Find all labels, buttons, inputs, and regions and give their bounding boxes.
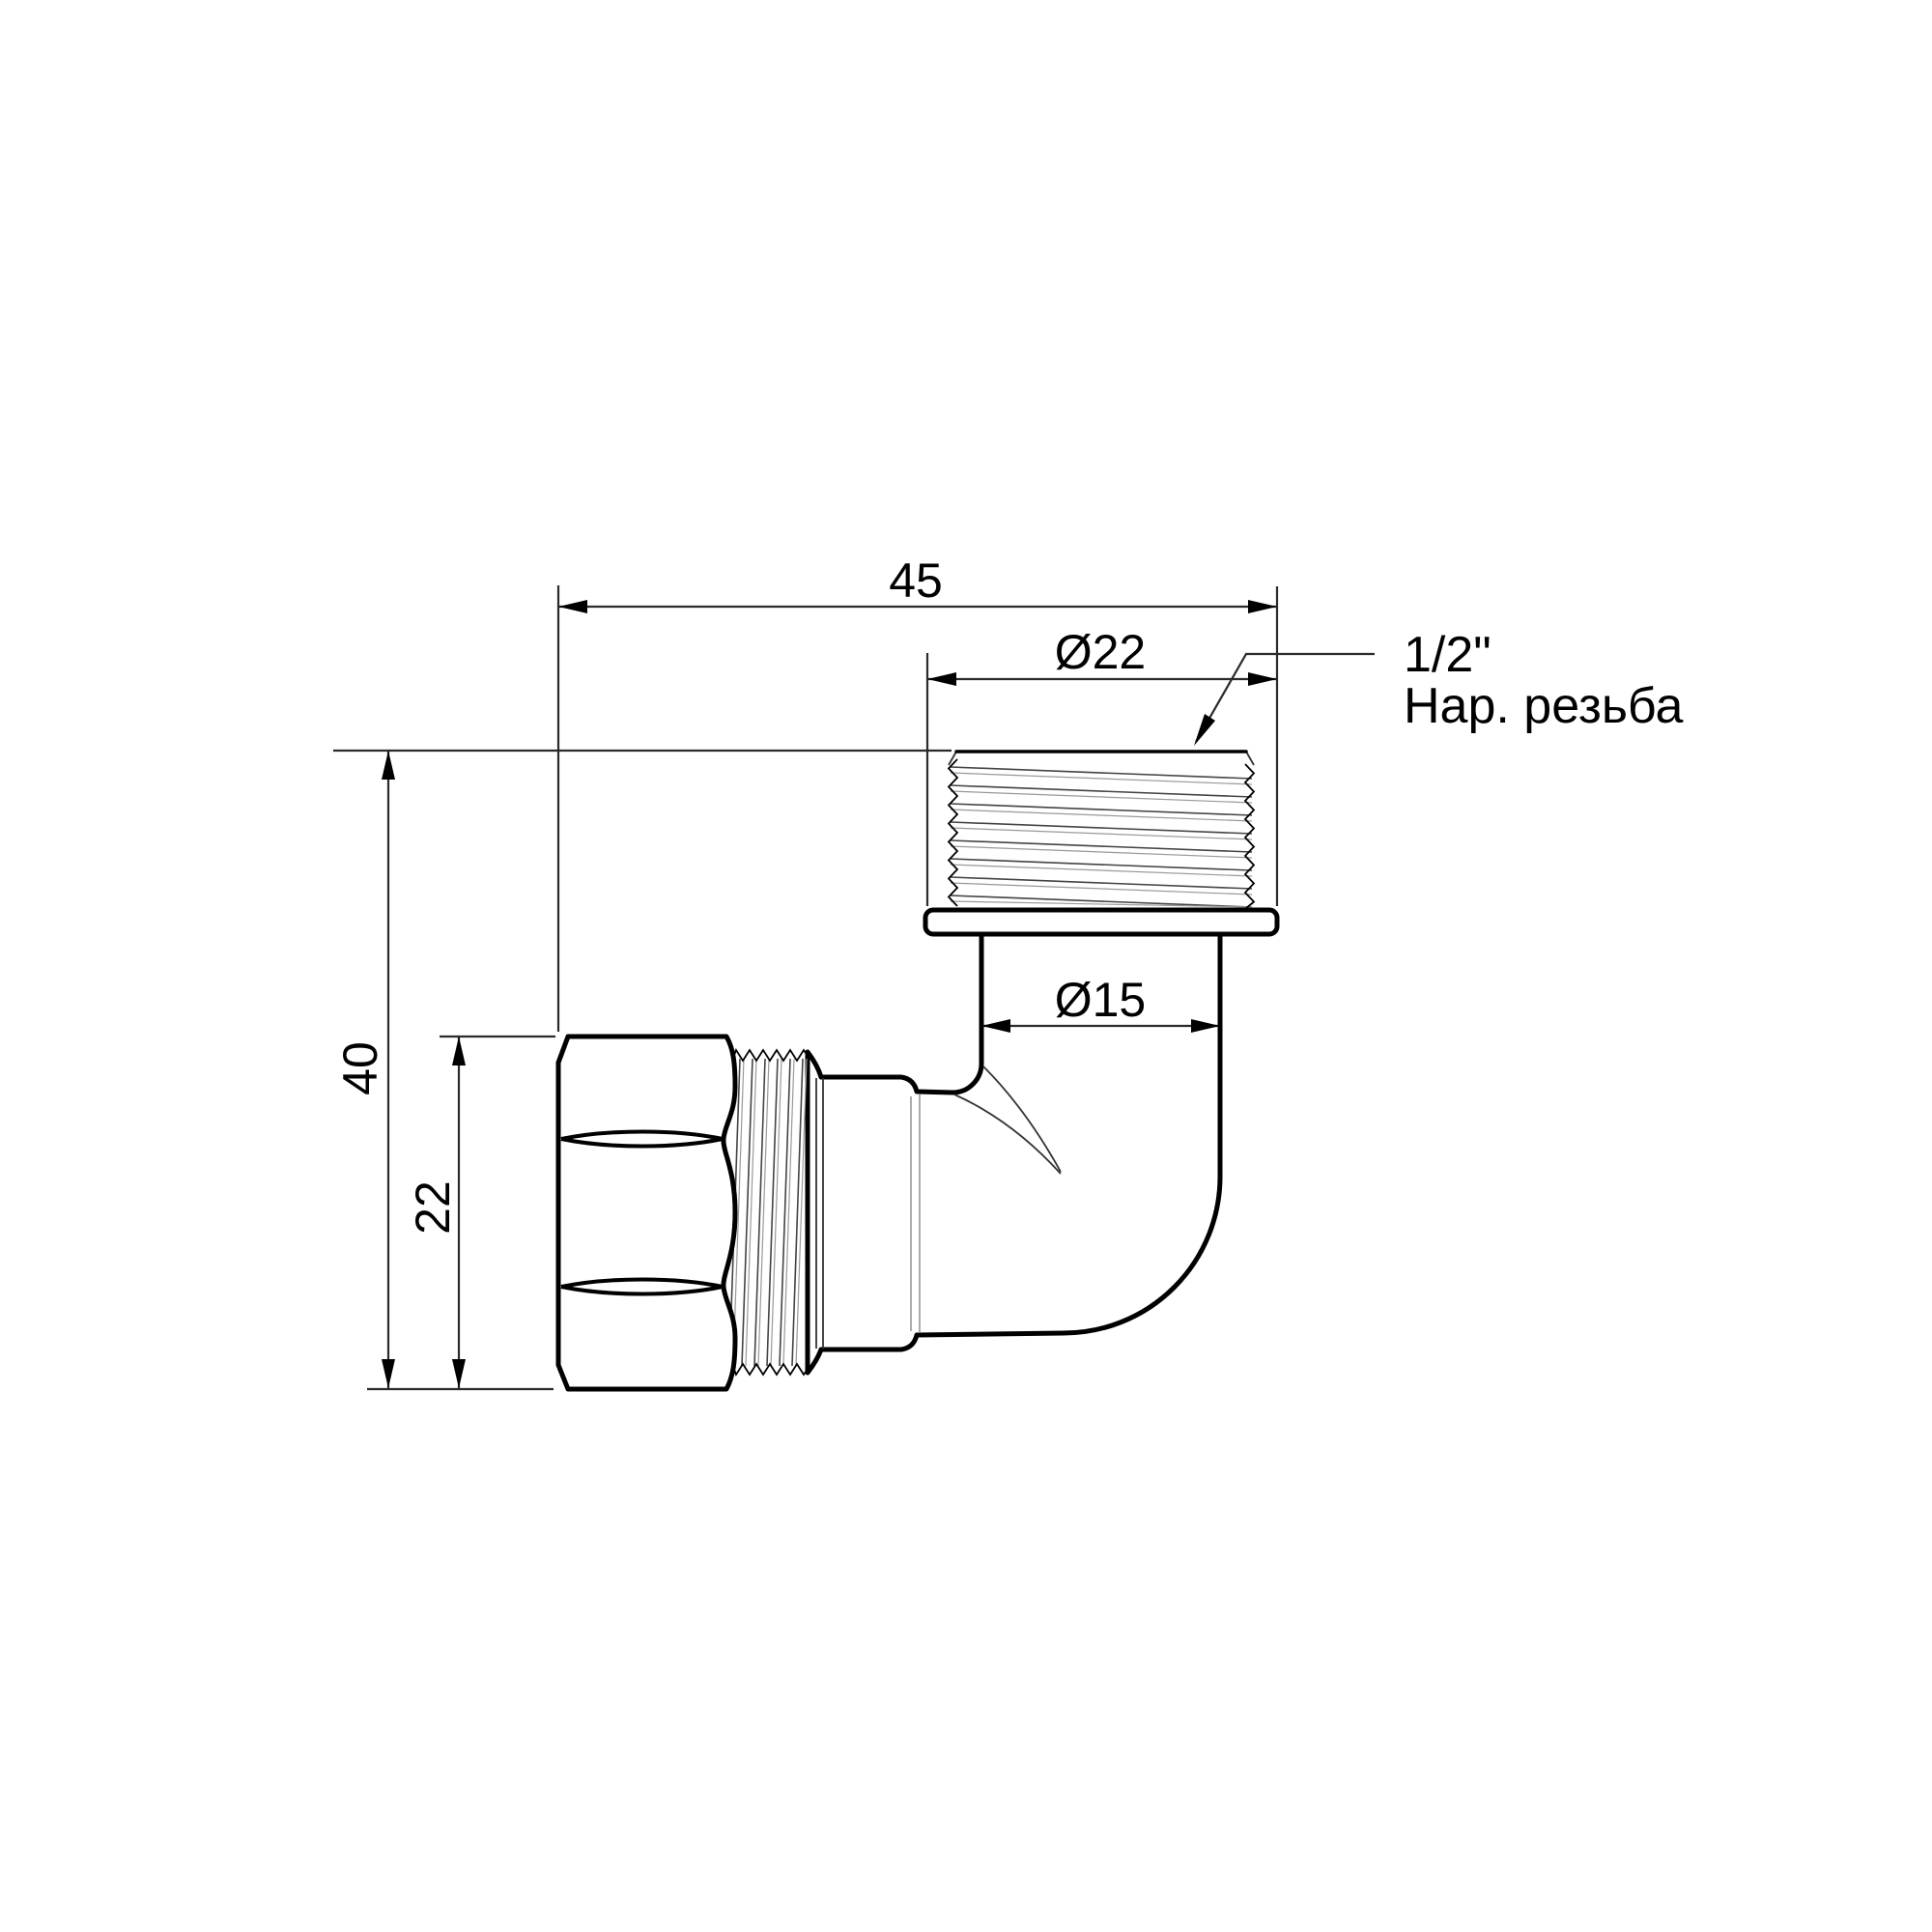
thread-helix-lines <box>729 1059 807 1366</box>
arrowhead-bottom <box>452 1359 466 1388</box>
thread-top-chamfer-left <box>949 752 956 765</box>
elbow-body <box>808 934 1220 1373</box>
arrowhead-bottom <box>382 1359 395 1388</box>
dimension-pipe-diameter: Ø15 <box>981 973 1220 1033</box>
dim-45-label: 45 <box>889 554 943 608</box>
flange <box>925 910 1277 934</box>
thread-crest-right <box>1245 764 1254 909</box>
thread-note-line1: 1/2" <box>1404 627 1492 683</box>
thread-crest-left <box>949 759 957 906</box>
arrowhead-top <box>452 1037 466 1065</box>
body-bottom-contour <box>821 934 1220 1350</box>
hex-nut <box>558 1037 735 1389</box>
leader-line <box>1196 654 1375 742</box>
step-ring-lines <box>911 1094 920 1333</box>
dimension-overall-width: 45 <box>558 554 1277 1032</box>
dimension-hex-size: 22 <box>406 1037 555 1388</box>
thread-note-leader: 1/2" Нар. резьба <box>1194 627 1684 746</box>
arrowhead-right <box>1191 1019 1220 1033</box>
thread-helix-lines <box>951 767 1252 907</box>
thread-note-line2: Нар. резьба <box>1404 678 1684 734</box>
arrowhead-top <box>382 751 395 780</box>
thread-crest-top <box>732 1050 808 1061</box>
dim-22-label: 22 <box>406 1180 460 1235</box>
dim-40-label: 40 <box>333 1041 387 1095</box>
elbow-intersection-curve <box>954 1066 1061 1174</box>
dim-d15-label: Ø15 <box>1055 973 1147 1027</box>
elbow-fitting-drawing: 45 Ø22 1/2" Нар. резьба Ø15 40 22 <box>0 0 1932 1932</box>
body-top-contour <box>821 934 981 1093</box>
arrowhead-left <box>558 600 587 613</box>
male-thread <box>949 752 1254 909</box>
dim-d22-label: Ø22 <box>1055 625 1147 679</box>
technical-drawing-page: 45 Ø22 1/2" Нар. резьба Ø15 40 22 <box>0 0 1932 1932</box>
female-thread-section <box>729 1050 808 1375</box>
arrowhead-right <box>1248 672 1277 686</box>
arrowhead-left <box>981 1019 1010 1033</box>
thread-crest-bottom <box>732 1364 808 1375</box>
thread-top-chamfer-right <box>1246 752 1254 765</box>
neck-ring-lines <box>816 1078 823 1349</box>
arrowhead-left <box>927 672 956 686</box>
hex-outline <box>558 1037 735 1389</box>
thread-shoulder <box>808 1052 821 1373</box>
arrowhead-right <box>1248 600 1277 613</box>
leader-arrowhead <box>1194 714 1215 746</box>
